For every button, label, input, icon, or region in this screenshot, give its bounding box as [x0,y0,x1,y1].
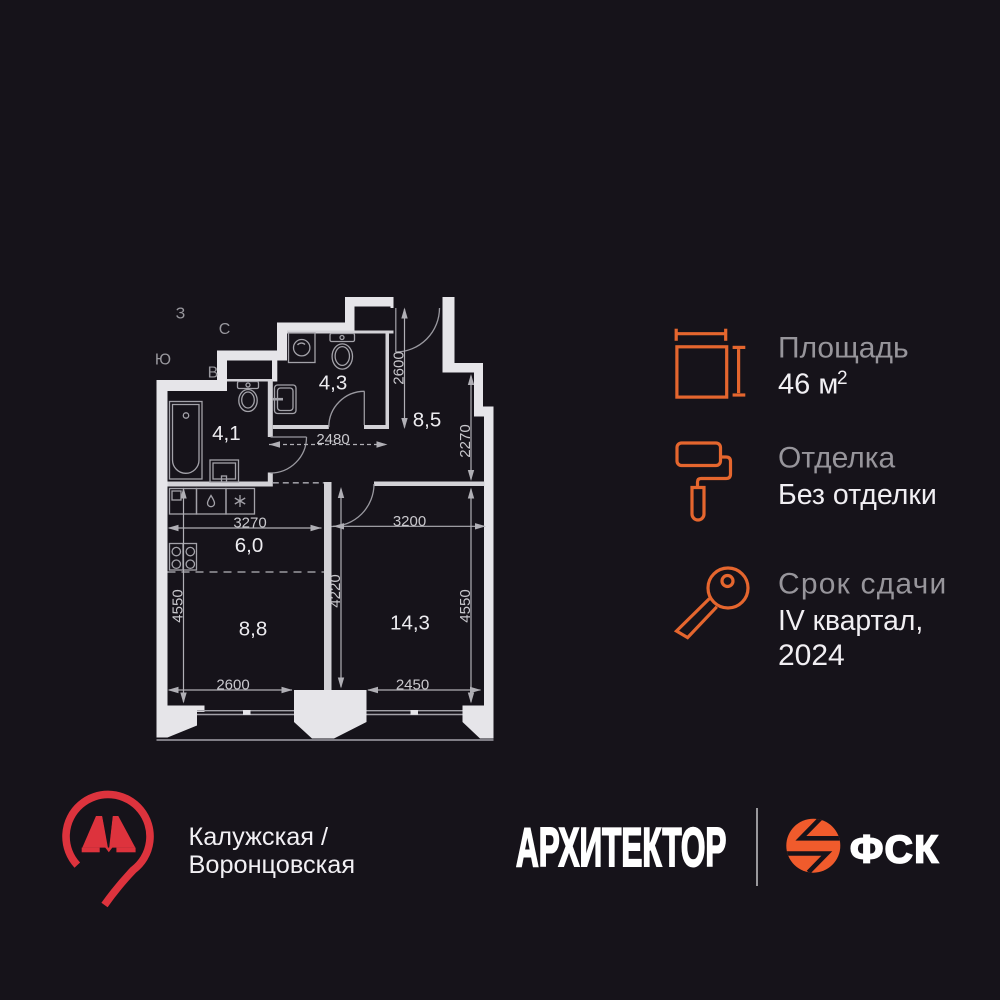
svg-text:Ю: Ю [155,351,171,368]
svg-text:14,3: 14,3 [390,612,430,635]
svg-text:3200: 3200 [393,513,426,530]
svg-text:АРХИТЕКТОР: АРХИТЕКТОР [516,818,726,878]
svg-text:3270: 3270 [233,514,266,531]
svg-text:4550: 4550 [170,589,187,622]
svg-text:6,0: 6,0 [235,534,264,557]
svg-text:8,5: 8,5 [413,409,442,432]
svg-text:4220: 4220 [327,574,344,607]
svg-text:2480: 2480 [316,431,349,448]
svg-text:2270: 2270 [457,424,474,457]
svg-text:4,1: 4,1 [212,422,241,445]
svg-text:З: З [176,306,186,323]
svg-text:2450: 2450 [396,676,429,693]
svg-text:8,8: 8,8 [239,618,268,641]
svg-text:2600: 2600 [391,351,408,384]
svg-text:46 м: 46 м [778,369,838,401]
svg-text:Отделка: Отделка [778,442,896,475]
svg-text:Без отделки: Без отделки [778,479,937,511]
svg-text:2: 2 [837,368,848,389]
svg-text:Воронцовская: Воронцовская [189,851,356,879]
svg-text:В: В [208,365,219,382]
svg-text:2600: 2600 [216,676,249,693]
svg-text:4,3: 4,3 [319,372,348,395]
svg-text:С: С [219,321,231,338]
svg-text:IV квартал,: IV квартал, [778,604,923,636]
svg-text:Срок сдачи: Срок сдачи [778,568,947,601]
svg-text:Площадь: Площадь [778,332,909,365]
svg-text:Калужская /: Калужская / [189,823,329,851]
svg-text:2024: 2024 [778,639,845,672]
svg-text:4550: 4550 [457,589,474,622]
svg-text:ФСК: ФСК [850,829,939,872]
